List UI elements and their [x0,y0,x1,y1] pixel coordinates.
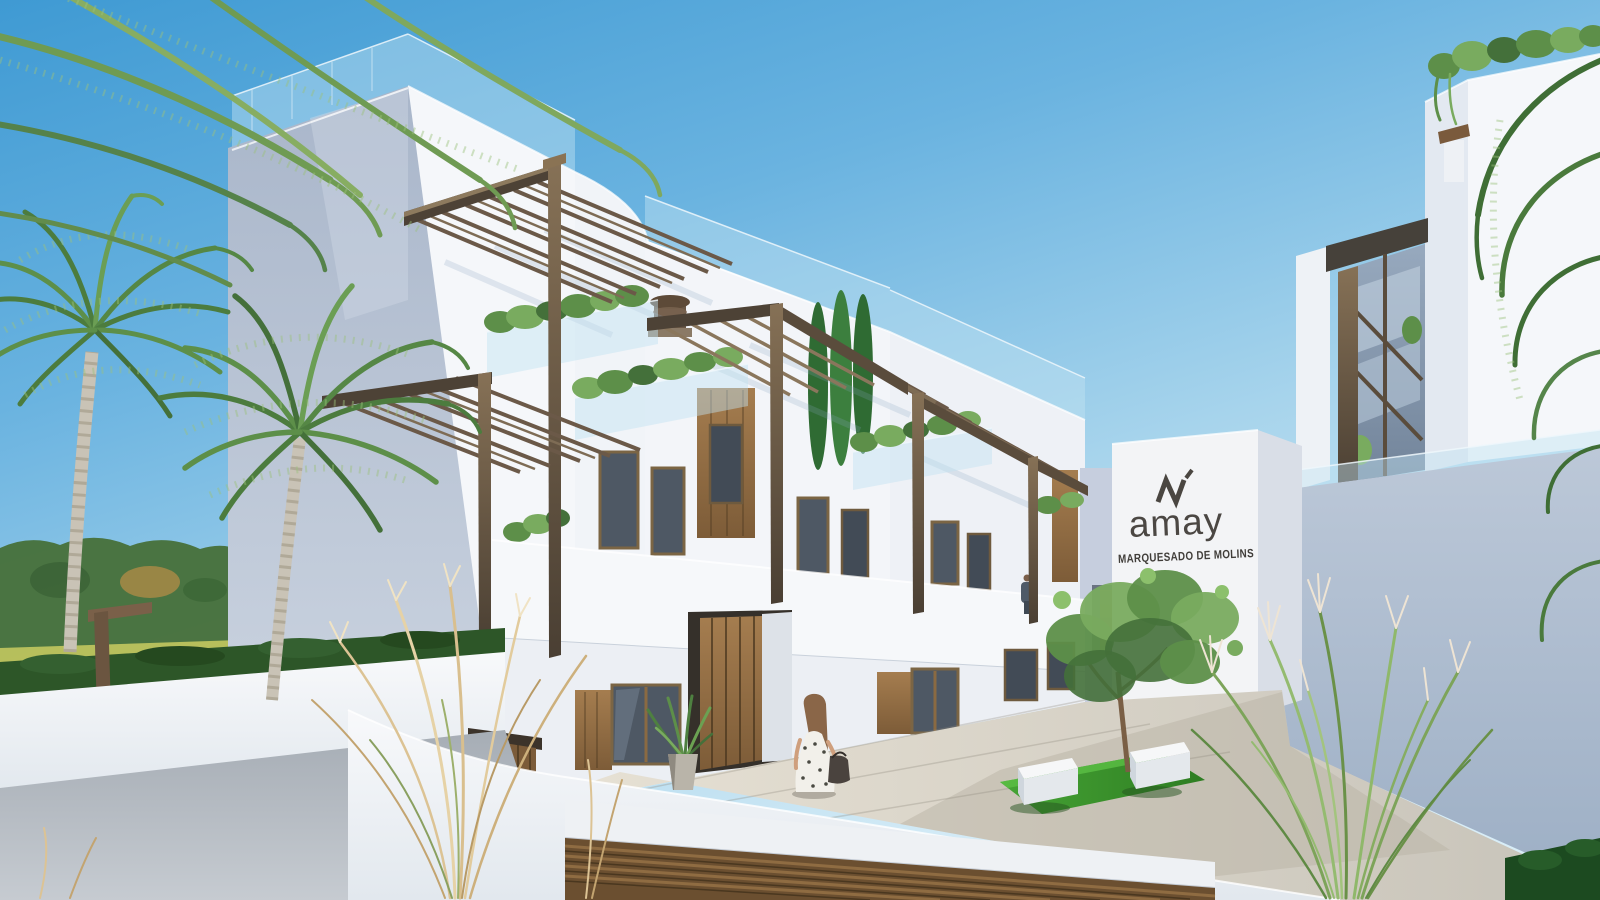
window [1005,650,1037,700]
pergola-column [1338,266,1358,490]
brand-logo: amay [1128,500,1224,545]
handbag [828,756,850,784]
window [932,522,958,584]
render-image: amay MARQUESADO DE MOLINS [0,0,1600,900]
window [842,510,868,578]
window [968,534,990,590]
entrance-door [700,616,762,770]
entrance [688,610,792,774]
window [600,452,638,548]
window [798,498,828,574]
wood-shutter [575,690,612,770]
window [652,468,684,554]
wood-shutter [877,672,912,734]
